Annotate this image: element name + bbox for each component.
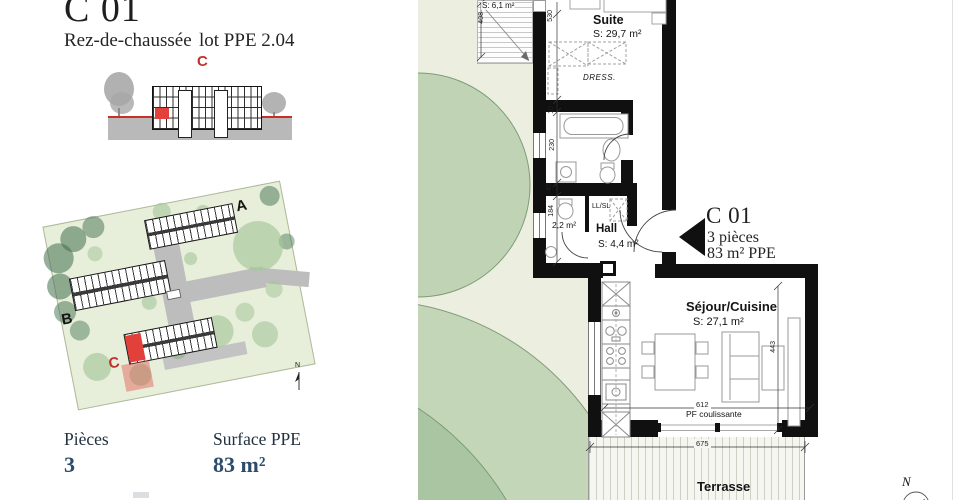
dining-set [642, 334, 708, 390]
surface-value: 83 m² [213, 452, 265, 478]
site-label-a: A [235, 197, 249, 216]
wc-area: 2,2 m² [552, 220, 576, 230]
balcony-area: S: 6,1 m² [481, 1, 515, 10]
callout-title: C 01 [706, 203, 752, 229]
tree-icon [110, 92, 134, 114]
site-label-c: C [107, 354, 121, 373]
page-edge-line [952, 0, 953, 500]
page-title: C 01 [64, 0, 141, 31]
floor-subtitle: Rez-de-chaussée [64, 30, 192, 52]
dressing-label: DRESS. [583, 73, 616, 82]
tree-icon [183, 251, 198, 266]
tree-icon [250, 319, 280, 349]
callout-area: 83 m² PPE [707, 245, 776, 263]
room-suite-area: S: 29,7 m² [593, 28, 641, 40]
tree-icon [258, 184, 281, 207]
highlighted-unit [155, 108, 169, 119]
north-arrow-icon [291, 370, 307, 392]
north-compass-icon [903, 492, 929, 500]
stair-run [480, 3, 529, 61]
dim-675: 675 [694, 439, 711, 448]
bathroom-fixtures [556, 139, 620, 183]
room-suite: Suite [593, 13, 624, 27]
site-north-label: N [295, 362, 300, 369]
tree-icon [234, 301, 256, 323]
room-sejour-area: S: 27,1 m² [693, 316, 744, 328]
dim-408: 408 [478, 12, 485, 24]
page-artifact [133, 492, 149, 498]
llsl-label: LL/SL [592, 203, 610, 210]
dim-612: 612 [694, 400, 711, 409]
dim-45: 45 [546, 183, 553, 191]
plan-north-label: N [902, 474, 911, 490]
elevation-stair-tower [178, 90, 192, 138]
elevation-drawing [100, 68, 300, 144]
surface-label: Surface PPE [213, 429, 301, 450]
tree-icon [262, 92, 286, 114]
pieces-label: Pièces [64, 429, 109, 450]
washer-dryer [610, 199, 627, 221]
entrance-arrow-icon [679, 218, 705, 256]
dim-530: 530 [547, 10, 554, 22]
bathtub [560, 114, 628, 138]
elevation-stair-tower [214, 90, 228, 138]
dim-443: 443 [770, 341, 777, 353]
tree-icon [86, 245, 104, 263]
site-unit-garden-tint [121, 360, 154, 392]
dim-10: 10 [548, 106, 555, 114]
room-hall: Hall [596, 223, 617, 235]
site-plan: A B C [42, 181, 315, 411]
room-hall-area: S: 4,4 m² [598, 239, 639, 250]
tree-icon [229, 217, 288, 276]
pieces-value: 3 [64, 452, 75, 478]
dim-230: 230 [549, 139, 556, 151]
lot-subtitle: lot PPE 2.04 [199, 30, 295, 52]
dressing-wardrobes [548, 42, 626, 94]
dim-184: 184 [548, 205, 555, 217]
pf-label: PF coulissante [684, 409, 744, 419]
plan-sheet: C 01 Rez-de-chaussée lot PPE 2.04 C [0, 0, 960, 500]
room-terrasse: Terrasse [697, 479, 750, 494]
room-sejour: Séjour/Cuisine [686, 299, 777, 314]
